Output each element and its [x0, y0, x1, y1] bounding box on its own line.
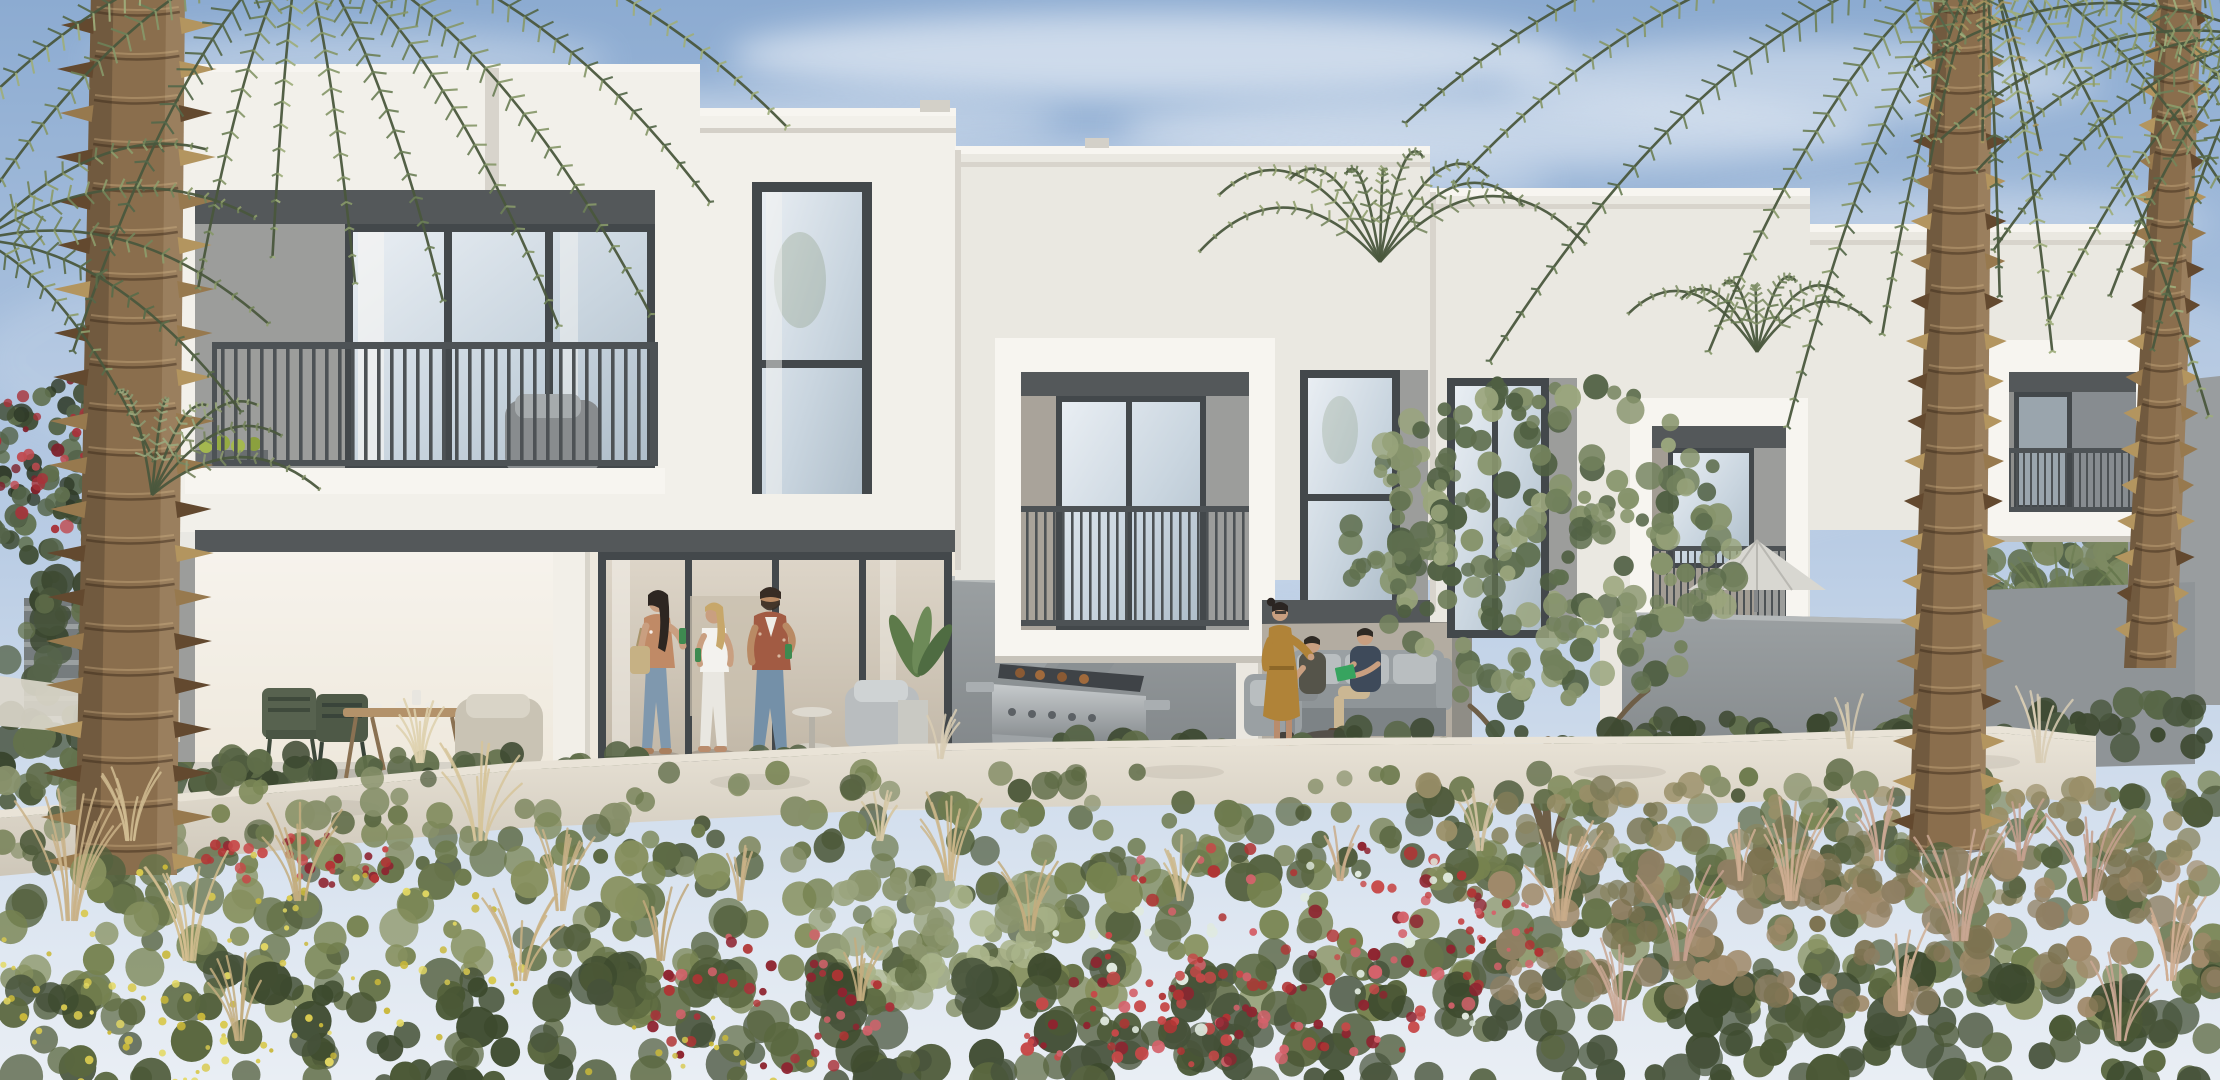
olive-leaf: [1618, 488, 1639, 509]
flower: [205, 1045, 210, 1050]
flower: [1425, 892, 1432, 899]
olive-leaf: [1453, 405, 1473, 425]
frond-leaflet: [650, 14, 651, 25]
flower: [1281, 944, 1291, 954]
frond-leaflet: [1724, 280, 1727, 282]
flower: [873, 980, 882, 989]
flower: [329, 881, 336, 888]
flower: [471, 905, 479, 913]
flower: [1173, 990, 1184, 1001]
shrub: [1295, 805, 1311, 821]
frond-leaflet: [1519, 200, 1521, 207]
frond-leaflet: [191, 146, 192, 150]
frond-leaflet: [6, 159, 16, 160]
frond-leaflet: [1311, 204, 1312, 213]
shrub: [212, 804, 231, 823]
flower: [1279, 1045, 1289, 1055]
frond-leaflet: [281, 434, 283, 435]
flower: [743, 944, 753, 954]
shrub: [765, 761, 789, 785]
olive-leaf: [1515, 542, 1540, 567]
olive-leaf: [1455, 637, 1472, 654]
shrub: [2158, 859, 2181, 882]
flower: [381, 867, 389, 875]
olive-leaf: [1549, 569, 1566, 586]
flower: [330, 1053, 337, 1060]
flower: [1164, 1020, 1177, 1033]
shrub: [593, 849, 608, 864]
olive-leaf: [1374, 464, 1388, 478]
bbq-grill-part: [1068, 713, 1076, 721]
grass-blade: [2120, 975, 2121, 1040]
frond-leaflet: [1220, 195, 1221, 197]
flower: [1457, 871, 1467, 881]
olive-leaf: [1434, 551, 1448, 565]
balcony-railing: [212, 342, 658, 466]
frond-leaflet: [2056, 37, 2077, 38]
background-shrub: [2093, 540, 2114, 561]
olive-leaf: [1461, 563, 1475, 577]
shrub: [1008, 779, 1032, 803]
olive-leaf: [1491, 376, 1504, 389]
flower: [1308, 950, 1317, 959]
frond-leaflet: [1231, 182, 1234, 184]
flower: [828, 1060, 840, 1072]
flower: [1111, 1029, 1119, 1037]
shrub: [1934, 1022, 1959, 1047]
flower: [261, 943, 269, 951]
flower: [1349, 938, 1356, 945]
flower: [292, 905, 298, 911]
shrub: [1587, 1035, 1618, 1066]
frond-leaflet: [718, 64, 720, 72]
shrub: [1943, 988, 1963, 1008]
curtain: [766, 192, 782, 518]
recessed-balcony-part: [1020, 370, 1250, 396]
flower: [1398, 929, 1407, 938]
shrub: [1664, 984, 1689, 1009]
flower: [1218, 913, 1226, 921]
flower: [1368, 948, 1381, 961]
roof-unit: [1085, 138, 1109, 148]
flower: [1091, 991, 1098, 998]
flower: [744, 983, 755, 994]
flower: [107, 1031, 111, 1035]
flower: [885, 1002, 894, 1011]
shrub: [636, 975, 661, 1000]
olive-leaf: [1474, 497, 1490, 513]
frond-leaflet: [1288, 178, 1290, 179]
flower: [1334, 954, 1340, 960]
roof-unit: [920, 100, 950, 112]
flower: [1175, 971, 1185, 981]
shrub: [101, 998, 138, 1035]
flower: [351, 976, 355, 980]
hedge-leaf: [2196, 727, 2213, 744]
flower: [1242, 972, 1251, 981]
lounge-corner-part: [792, 707, 832, 717]
shrub: [1764, 982, 1789, 1007]
flower: [692, 974, 702, 984]
flower: [1351, 947, 1361, 957]
shrub: [1881, 880, 1905, 904]
frond-leaflet: [1335, 189, 1344, 190]
frond-leaflet: [734, 79, 736, 86]
flower: [1308, 905, 1322, 919]
frond-leaflet: [1843, 296, 1844, 298]
balcony-railing: [2009, 448, 2136, 512]
olive-leaf: [1419, 601, 1434, 616]
flower: [90, 1010, 94, 1014]
frond-leaflet: [16, 203, 17, 220]
balcony-railing-part: [212, 342, 658, 349]
shrub: [970, 836, 1000, 866]
flower: [287, 895, 293, 901]
olive-leaf: [1680, 448, 1700, 468]
shrub: [1844, 887, 1872, 915]
flower: [807, 1059, 815, 1067]
bbq-grill-part: [1008, 708, 1016, 716]
olive-leaf: [1390, 578, 1407, 595]
shrub: [1574, 974, 1602, 1002]
frond-leaflet: [355, 283, 358, 284]
shrub: [1093, 820, 1114, 841]
shrub: [1726, 1030, 1752, 1056]
flower: [1159, 993, 1166, 1000]
background-tree: [19, 545, 39, 565]
flower: [1458, 918, 1465, 925]
lounge-corner-part: [809, 714, 815, 748]
shrub: [1581, 898, 1612, 929]
flower: [1134, 1000, 1146, 1012]
flower: [1107, 1042, 1115, 1050]
flower: [1249, 928, 1257, 936]
shrub: [360, 787, 390, 817]
frond-leaflet: [2116, 156, 2131, 157]
shrub: [1168, 942, 1186, 960]
frond-leaflet: [1200, 251, 1201, 253]
frond-leaflet: [436, 273, 441, 274]
shrub: [2104, 849, 2132, 877]
flower: [419, 966, 428, 975]
shrub: [1965, 975, 1983, 993]
flower: [1040, 1042, 1047, 1049]
flower: [1216, 1017, 1229, 1030]
flower: [108, 982, 116, 990]
flower: [196, 1070, 200, 1074]
flower: [824, 1016, 831, 1023]
townhouse-3-part: [1430, 204, 1810, 209]
frond-leaflet: [1351, 165, 1352, 169]
frond-leaflet: [1415, 147, 1416, 151]
flower: [128, 983, 137, 992]
flower: [1028, 1038, 1035, 1045]
flower: [740, 1060, 746, 1066]
flower: [1387, 884, 1396, 893]
flower: [1134, 906, 1144, 916]
shrub: [949, 885, 973, 909]
flower: [472, 892, 479, 899]
olive-leaf: [1666, 655, 1688, 677]
green-chair-part: [268, 697, 310, 701]
shrub: [2139, 1000, 2182, 1043]
olive-leaf: [1543, 593, 1568, 618]
frond-leaflet: [185, 53, 203, 54]
frond-leaflet: [127, 405, 133, 406]
shrub: [1129, 764, 1146, 781]
olive-leaf: [1545, 489, 1569, 513]
background-tree: [27, 493, 40, 506]
shrub: [820, 907, 836, 923]
frond-leaflet: [1290, 179, 1291, 181]
flower: [1525, 960, 1533, 968]
flower: [1100, 1017, 1109, 1026]
flower: [1492, 911, 1497, 916]
olive-leaf: [1652, 512, 1674, 534]
shrub: [1824, 772, 1844, 792]
balcony-railing-part: [653, 342, 658, 466]
flower: [717, 973, 728, 984]
flower: [436, 1034, 443, 1041]
shrub: [388, 805, 408, 825]
flower: [1357, 842, 1366, 851]
flower: [1234, 1005, 1240, 1011]
flower: [463, 968, 470, 975]
flower: [1379, 991, 1387, 999]
frond-leaflet: [538, 275, 544, 276]
shrub: [2048, 943, 2069, 964]
shrub: [2027, 900, 2046, 919]
shrub: [1496, 929, 1527, 960]
recessed-balcony-part: [995, 338, 1275, 372]
hedge-leaf: [2181, 694, 2206, 719]
shrub: [2026, 784, 2047, 805]
olive-leaf: [1661, 438, 1676, 453]
shrub: [780, 846, 806, 872]
flower: [1466, 945, 1475, 954]
frond-leaflet: [2209, 416, 2213, 417]
frond-leaflet: [1495, 187, 1496, 191]
background-tree: [23, 426, 29, 432]
frond-leaflet: [1791, 305, 1792, 315]
frond-leaflet: [81, 331, 90, 332]
flower: [1502, 899, 1511, 908]
frond-leaflet: [1717, 298, 1719, 308]
olive-leaf: [1721, 538, 1742, 559]
frond-leaflet: [128, 297, 129, 307]
flower: [1469, 1020, 1475, 1026]
shrub: [970, 910, 996, 936]
shrub: [420, 958, 463, 1001]
frond-leaflet: [1781, 282, 1787, 283]
olive-leaf: [1658, 606, 1684, 632]
frond-leaflet: [126, 182, 137, 183]
flower: [382, 846, 388, 852]
frond-leaflet: [1719, 288, 1720, 296]
flower: [810, 960, 819, 969]
shrub: [1698, 984, 1732, 1018]
townhouse-2-part: [955, 150, 961, 570]
flower: [664, 985, 675, 996]
olive-leaf: [1560, 690, 1576, 706]
shrub: [1760, 1039, 1787, 1066]
frond-leaflet: [205, 197, 206, 203]
olive-leaf: [1434, 479, 1447, 492]
flower: [1246, 874, 1256, 884]
flower: [202, 1064, 210, 1072]
olive-leaf: [1689, 588, 1707, 606]
flower: [510, 983, 514, 987]
shrub: [1014, 818, 1030, 834]
frond-leaflet: [2192, 361, 2198, 362]
shrub: [642, 831, 660, 849]
flower: [20, 1013, 28, 1021]
flower: [2, 937, 7, 942]
olive-leaf: [1452, 686, 1469, 703]
flower: [1313, 1020, 1323, 1030]
flower: [1146, 979, 1154, 987]
frond-leaflet: [163, 405, 168, 406]
shrub: [988, 761, 1013, 786]
olive-leaf: [1620, 509, 1634, 523]
flower: [319, 1023, 323, 1027]
olive-leaf: [1500, 614, 1521, 635]
architectural-rendering: [0, 0, 2220, 1080]
flower: [1320, 1042, 1329, 1051]
shrub: [1490, 976, 1515, 1001]
background-shrub: [18, 622, 36, 640]
frond-leaflet: [250, 309, 251, 313]
frond-leaflet: [209, 372, 214, 373]
frond-leaflet: [2184, 336, 2191, 337]
frond-leaflet: [168, 398, 170, 399]
flower: [870, 1020, 881, 1031]
shrub: [1577, 848, 1604, 875]
flower: [228, 840, 240, 852]
shrub: [2102, 1002, 2143, 1043]
background-tree: [51, 525, 59, 533]
shrub: [230, 927, 249, 946]
shrub: [1084, 795, 1101, 812]
flower: [1463, 972, 1472, 981]
shrub: [2119, 783, 2146, 810]
flower: [729, 979, 738, 988]
flower: [1097, 977, 1108, 988]
wicker-armchair-part: [466, 694, 530, 718]
shrub: [1710, 777, 1731, 798]
parapet-cap: [955, 146, 1430, 154]
olive-leaf: [1449, 470, 1461, 482]
shrub: [1171, 791, 1194, 814]
frond-leaflet: [1585, 243, 1587, 244]
frond-leaflet: [206, 147, 208, 149]
flower: [1294, 1022, 1303, 1031]
shrub: [1547, 794, 1566, 813]
balcony-part: [2009, 448, 2136, 453]
flower: [672, 1053, 678, 1059]
frond-leaflet: [190, 405, 191, 410]
olive-leaf: [1387, 473, 1400, 486]
frond-leaflet: [1347, 168, 1350, 170]
bbq-grill-part: [1057, 672, 1067, 682]
flower: [0, 962, 6, 968]
frond-leaflet: [127, 390, 129, 394]
flower: [141, 995, 146, 1000]
shrub: [1308, 779, 1324, 795]
flower: [1368, 965, 1382, 979]
frond-leaflet: [85, 298, 91, 299]
shrub: [658, 762, 680, 784]
shrub: [1331, 802, 1352, 823]
recessed-balcony-part: [1020, 620, 1250, 626]
shrub: [1293, 955, 1322, 984]
flower: [256, 1059, 261, 1064]
frond-leaflet: [204, 431, 205, 440]
shrub: [1172, 828, 1197, 853]
shrub: [83, 944, 114, 975]
flower: [235, 863, 246, 874]
shrub: [1211, 993, 1253, 1035]
frond-leaflet: [548, 300, 553, 301]
olive-leaf: [1662, 414, 1680, 432]
shrub: [1351, 860, 1371, 880]
hedge-leaf: [1485, 720, 1504, 739]
flower: [1083, 1022, 1090, 1029]
flower: [753, 1000, 760, 1007]
flower: [708, 967, 717, 976]
frond-leaflet: [1216, 236, 1217, 239]
shrub: [1259, 910, 1289, 940]
background-tree: [11, 464, 20, 473]
frond-leaflet: [1568, 228, 1569, 231]
frond-leaflet: [227, 399, 228, 404]
olive-leaf: [1356, 558, 1372, 574]
frond-leaflet: [701, 51, 702, 60]
frond-leaflet: [2052, 351, 2056, 353]
hedge-leaf: [282, 741, 310, 769]
flower: [1430, 858, 1437, 865]
flower: [453, 922, 457, 926]
person-woman-blonde-part: [698, 746, 711, 752]
flower: [370, 874, 379, 883]
shrub: [1737, 898, 1764, 925]
shrub: [1628, 906, 1645, 923]
flower: [853, 1024, 860, 1031]
olive-leaf: [1481, 608, 1504, 631]
shrub: [1908, 870, 1926, 888]
shrub: [821, 828, 842, 849]
shrub: [1379, 826, 1402, 849]
flower: [221, 1056, 229, 1064]
frond-leaflet: [1296, 171, 1299, 173]
shrub: [803, 878, 835, 910]
background-tree: [72, 428, 81, 437]
frond-leaflet: [508, 6, 509, 22]
flower: [838, 988, 848, 998]
frond-leaflet: [2159, 262, 2169, 264]
frond-leaflet: [1419, 151, 1422, 153]
olive-leaf: [1543, 654, 1569, 680]
ground-patio-part: [585, 552, 590, 762]
townhouse-2-part: [955, 162, 1430, 167]
frond-leaflet: [785, 126, 786, 130]
frond-leaflet: [1523, 205, 1525, 206]
shrub: [1065, 764, 1087, 786]
shrub: [1688, 1037, 1720, 1069]
flower: [1197, 957, 1203, 963]
flower: [74, 1011, 83, 1020]
flower: [334, 854, 344, 864]
